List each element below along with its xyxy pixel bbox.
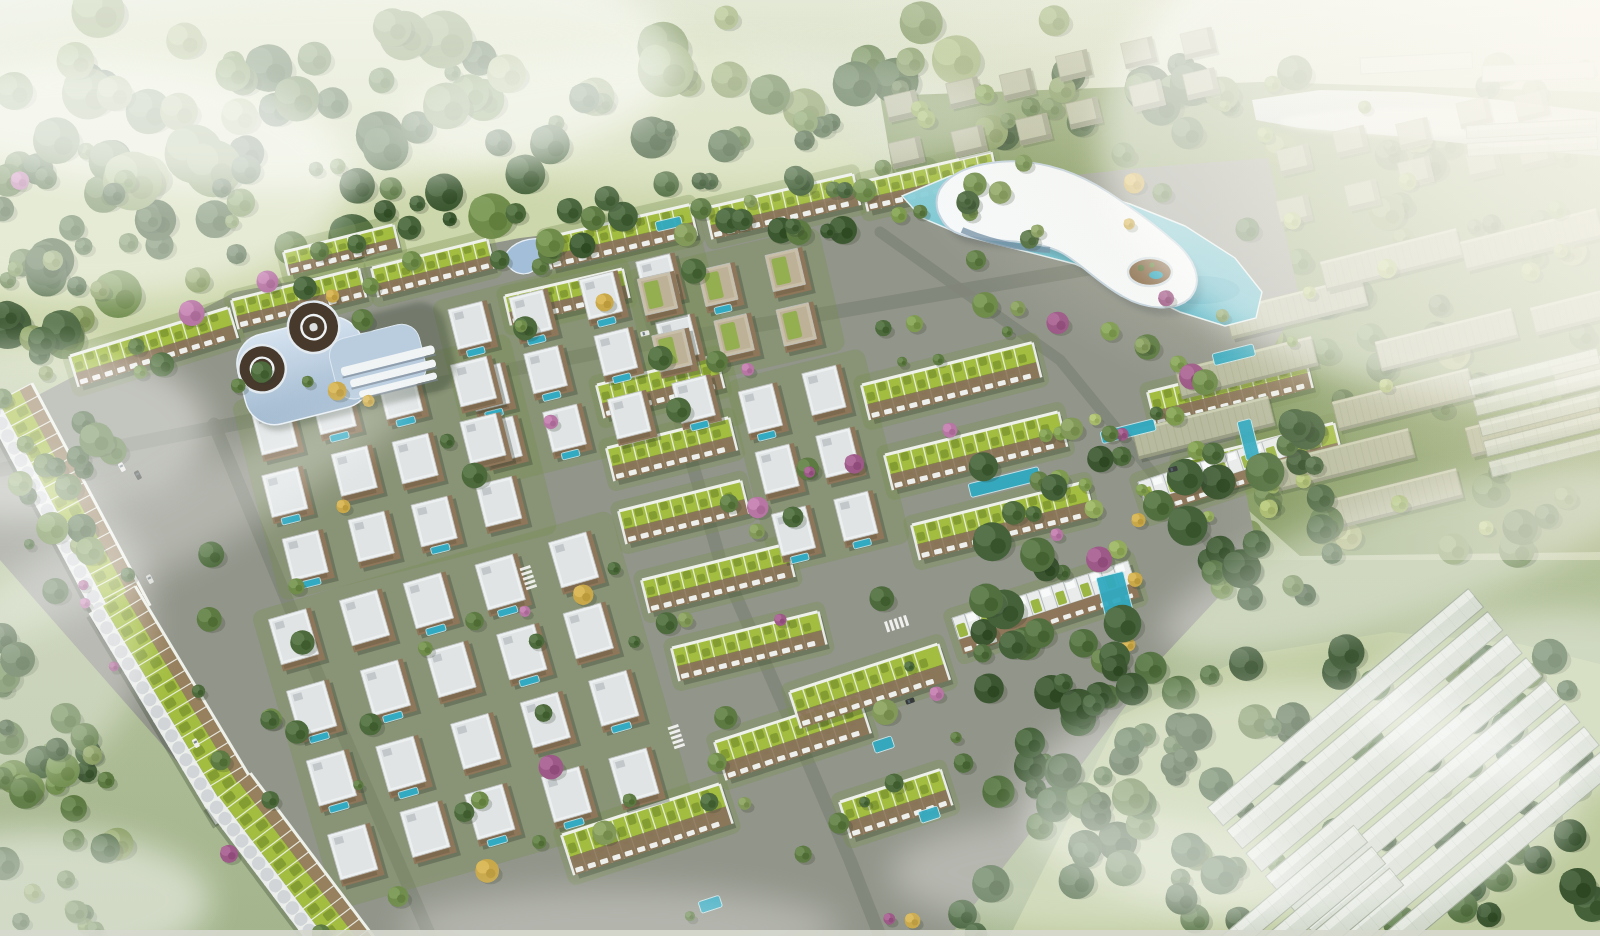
mist-patch xyxy=(400,48,1000,188)
bottom-strip xyxy=(0,930,1600,936)
atmosphere xyxy=(0,0,1600,936)
masterplan-scene xyxy=(0,0,1600,936)
mist-patch xyxy=(890,812,1310,932)
aerial-rendering: Bird's-eye architectural rendering of a … xyxy=(0,0,1600,936)
